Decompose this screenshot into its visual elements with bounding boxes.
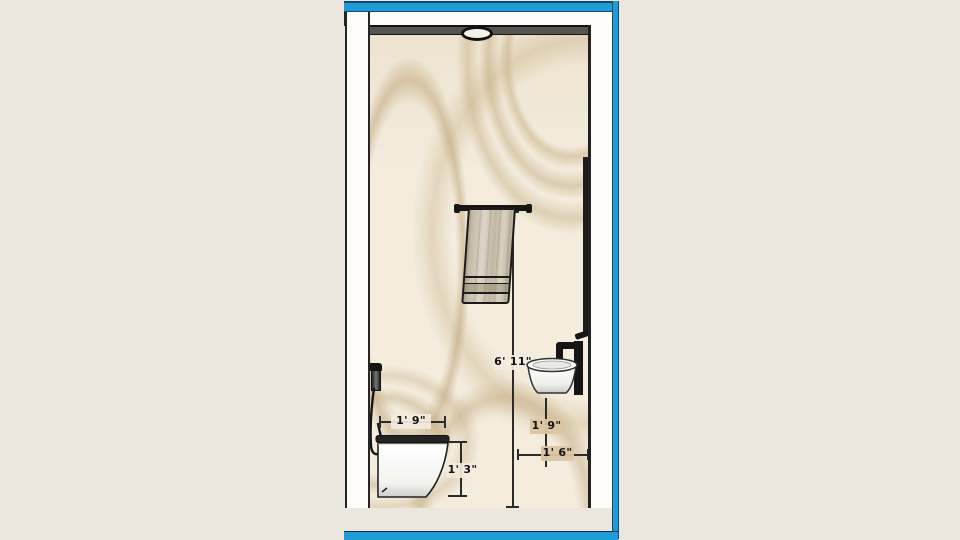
right-return-wall[interactable]	[588, 25, 615, 508]
dim-tick	[517, 449, 519, 460]
wall-hung-toilet[interactable]	[374, 434, 454, 500]
ceiling-band	[344, 12, 614, 26]
dim-tick	[444, 416, 446, 428]
towel-hem-band	[464, 284, 509, 292]
dim-tick	[379, 416, 381, 428]
dim-tick	[448, 495, 467, 497]
dim-label-vanity-width[interactable]: 1' 6"	[541, 446, 574, 461]
towel[interactable]	[461, 208, 516, 304]
towel-stripe	[465, 276, 509, 278]
dim-tick	[506, 506, 519, 508]
dim-tick	[448, 441, 467, 443]
ceiling-light-icon[interactable]	[461, 26, 493, 41]
left-return-wall[interactable]	[345, 12, 370, 508]
frame-right-strip	[612, 1, 619, 539]
towel-stripe	[464, 292, 508, 294]
dim-label-vanity-height[interactable]: 1' 9"	[530, 419, 563, 434]
frame-bottom-bar	[344, 531, 618, 540]
frame-top-bar	[344, 1, 618, 12]
dim-label-toilet-height[interactable]: 1' 3"	[447, 463, 478, 478]
model-viewport: 6' 11" 1' 9" 1' 3"	[0, 0, 960, 540]
vessel-sink[interactable]	[524, 357, 580, 396]
dim-label-toilet-depth[interactable]: 1' 9"	[391, 414, 431, 429]
